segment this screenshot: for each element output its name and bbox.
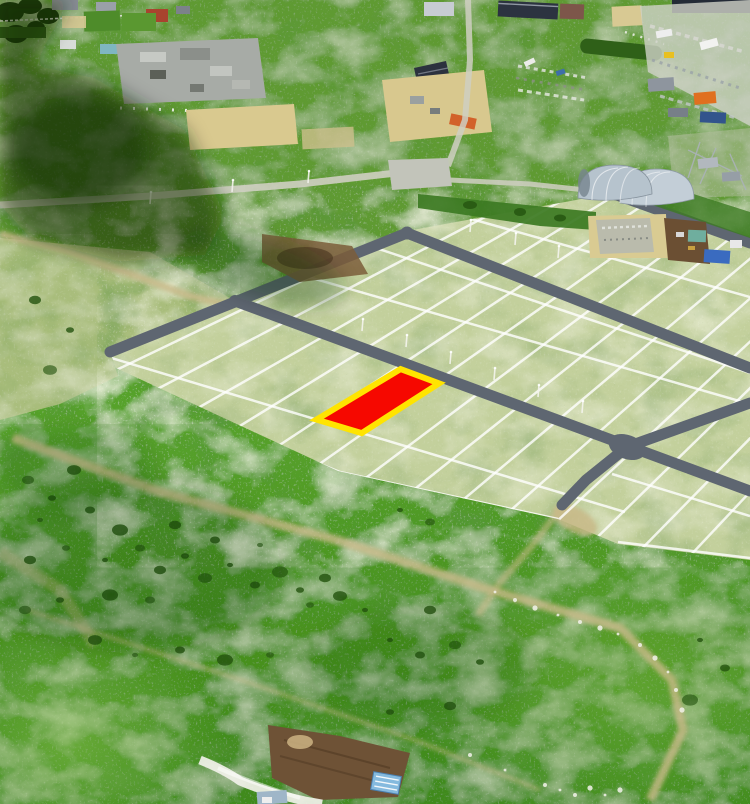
sand-streak [302,127,355,150]
orange-excavator [694,91,717,105]
blue-container [700,111,727,123]
big-sand-pad [382,70,492,142]
white-building [424,2,454,16]
teal-shed [688,230,706,243]
farm-house [560,4,585,20]
concrete-pad [116,38,266,104]
lawn [122,13,156,31]
aerial-photo: Aerial view of subdivided land plots [0,0,750,804]
aerial-photo-canvas: Aerial view of subdivided land plots [0,0,750,804]
hut-end-shade [578,169,590,197]
junction-top-corner [401,227,414,240]
house-sw [257,790,288,804]
sand-pad [186,104,298,150]
concrete-junction-pad [388,158,452,190]
sand-pad-top [611,5,642,27]
lawn [84,10,121,31]
white-shed [60,40,76,49]
sand-patch-small [62,16,86,28]
trailer [722,171,741,181]
rubble-pad [596,218,654,254]
gray-shed [648,77,675,92]
house-roof [176,6,190,14]
blue-shed [704,249,731,264]
greenhouse [100,44,118,54]
white-shed [730,240,742,248]
yellow-machine [664,52,674,58]
sand-spot [287,735,313,749]
junction-west [229,295,241,307]
house-roof [96,2,116,11]
gray-container [668,108,688,117]
trailer [698,157,719,169]
